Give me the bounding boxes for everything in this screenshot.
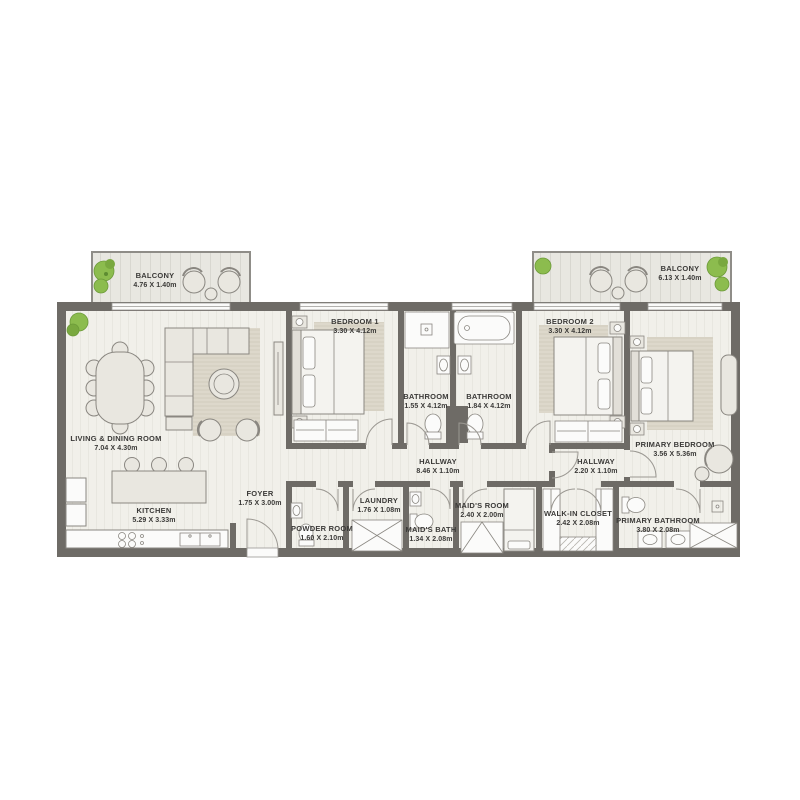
toilet-icon [425,414,441,439]
bed-primary [631,351,693,421]
balcony-right-structure [533,252,731,309]
coffee-table [209,369,239,399]
toilet-icon [299,524,314,546]
sink-icon [437,356,450,374]
bed-maids [504,489,534,551]
toilet-icon [410,514,433,529]
bathtub [454,312,514,344]
tv-console [274,342,283,415]
bed-bedroom1 [292,330,364,414]
sink-icon [458,356,471,374]
kitchen-island [112,458,206,504]
sink-icon [410,492,421,506]
shower [405,312,449,348]
kitchen-sink [180,533,220,546]
toilet-icon [622,497,645,513]
sink-icon [291,503,302,518]
wardrobe [555,421,622,442]
floor-plan-canvas [0,0,800,800]
bed-bedroom2 [554,337,622,415]
toilet-icon [467,414,483,439]
balcony-left-structure [92,252,250,309]
entry-threshold [247,548,278,557]
bench [721,355,737,415]
floor-plan: BALCONY 4.76 X 1.40m BALCONY 6.13 X 1.40… [0,0,800,800]
wardrobe [294,420,358,441]
laundry-unit [352,520,402,551]
wardrobe [461,522,503,553]
